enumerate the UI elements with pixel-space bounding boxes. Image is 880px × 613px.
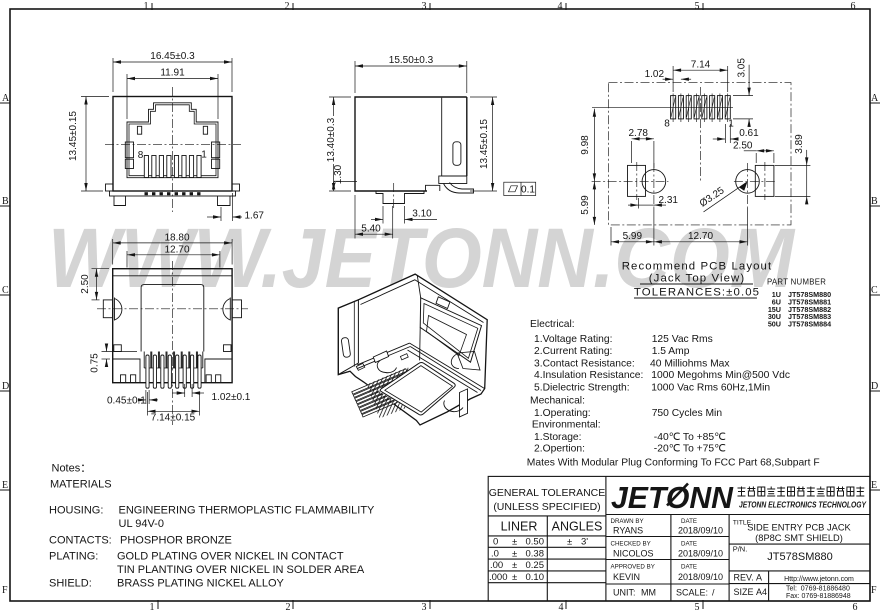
- svg-text:1.67: 1.67: [245, 211, 265, 222]
- svg-text:BRASS PLATING NICKEL ALLOY: BRASS PLATING NICKEL ALLOY: [117, 578, 285, 590]
- svg-text:0.50: 0.50: [526, 537, 545, 548]
- svg-text:1.5 Amp: 1.5 Amp: [652, 346, 690, 357]
- svg-text:C: C: [2, 285, 9, 296]
- svg-text:CONTACTS:: CONTACTS:: [49, 535, 112, 547]
- svg-text:1: 1: [150, 602, 155, 613]
- svg-text:PHOSPHOR BRONZE: PHOSPHOR BRONZE: [120, 535, 232, 547]
- svg-text:1.Operating:: 1.Operating:: [534, 408, 591, 419]
- svg-text:5.Dielectric Strength:: 5.Dielectric Strength:: [534, 383, 630, 394]
- svg-text:±: ±: [512, 572, 517, 583]
- svg-text:TIN PLANTING OVER NICKEL IN SO: TIN PLANTING OVER NICKEL IN SOLDER AREA: [117, 564, 365, 576]
- svg-text:2.78: 2.78: [629, 128, 649, 139]
- svg-text:0.45±0.1: 0.45±0.1: [107, 395, 146, 406]
- svg-text:Mechanical:: Mechanical:: [530, 395, 585, 406]
- svg-text:±: ±: [567, 537, 572, 548]
- svg-text:LINER: LINER: [501, 520, 538, 534]
- svg-text:2.50: 2.50: [80, 274, 91, 294]
- svg-text:2018/09/10: 2018/09/10: [678, 526, 723, 536]
- svg-text:DATE: DATE: [681, 518, 697, 525]
- svg-text:2.31: 2.31: [659, 195, 679, 206]
- svg-text:15.50±0.3: 15.50±0.3: [389, 55, 434, 66]
- svg-text:Mates With Modular Plug Confor: Mates With Modular Plug Conforming To FC…: [527, 458, 820, 469]
- svg-text:0.25: 0.25: [526, 560, 545, 571]
- svg-text:JT578SM884: JT578SM884: [788, 320, 831, 329]
- svg-text:±: ±: [512, 560, 517, 571]
- svg-text:18.80: 18.80: [164, 233, 189, 244]
- svg-text:ANGLES: ANGLES: [552, 520, 603, 534]
- svg-text:7.14±0.15: 7.14±0.15: [151, 413, 196, 424]
- svg-text:±: ±: [512, 537, 517, 548]
- svg-text:PART NUMBER: PART NUMBER: [767, 278, 826, 287]
- svg-text:750 Cycles Min: 750 Cycles Min: [652, 408, 723, 419]
- svg-text:B: B: [2, 196, 9, 207]
- svg-text:D: D: [871, 381, 878, 392]
- svg-text:APPROVED BY: APPROVED BY: [611, 564, 655, 571]
- svg-text:.0: .0: [491, 548, 499, 559]
- svg-text:5.99: 5.99: [623, 231, 643, 242]
- svg-text:5: 5: [695, 602, 700, 613]
- svg-text:.00: .00: [490, 560, 503, 571]
- svg-text:F: F: [871, 585, 877, 596]
- svg-text:5: 5: [695, 1, 700, 12]
- svg-text:E: E: [2, 480, 8, 491]
- svg-text:REV.: REV.: [734, 573, 754, 583]
- svg-text:MM: MM: [641, 588, 656, 598]
- svg-text:SIZE: SIZE: [734, 587, 754, 597]
- svg-text:0: 0: [493, 537, 498, 548]
- svg-text:0.75: 0.75: [90, 353, 101, 373]
- svg-text:7.14: 7.14: [691, 59, 711, 70]
- svg-text:ENGINEERING THERMOPLASTIC FLAM: ENGINEERING THERMOPLASTIC FLAMMABILITY: [119, 505, 376, 517]
- svg-text:3: 3: [422, 602, 427, 613]
- svg-text:13.45±0.15: 13.45±0.15: [68, 111, 79, 161]
- svg-text:Http://www.jetonn.com: Http://www.jetonn.com: [784, 576, 854, 583]
- svg-text:TOLERANCES:±0.05: TOLERANCES:±0.05: [634, 287, 760, 299]
- svg-text:1.Voltage Rating:: 1.Voltage Rating:: [534, 334, 612, 345]
- svg-text:SCALE:: SCALE:: [676, 588, 708, 598]
- svg-text:1000 Megohms Min@500 Vdc: 1000 Megohms Min@500 Vdc: [651, 370, 790, 381]
- svg-text:8: 8: [138, 150, 144, 161]
- svg-text:UNIT:: UNIT:: [613, 588, 636, 598]
- svg-text:6: 6: [853, 602, 858, 613]
- svg-text:2: 2: [285, 1, 290, 12]
- svg-text:Electrical:: Electrical:: [530, 319, 575, 330]
- svg-text:50U: 50U: [768, 320, 781, 329]
- svg-text:-20℃ To +75℃: -20℃ To +75℃: [654, 444, 726, 455]
- svg-text:5.99: 5.99: [580, 195, 591, 215]
- svg-text:13.45±0.15: 13.45±0.15: [479, 119, 490, 169]
- svg-text:(UNLESS SPECIFIED): (UNLESS SPECIFIED): [493, 501, 600, 513]
- svg-text:16.45±0.3: 16.45±0.3: [150, 51, 195, 62]
- svg-text:2.50: 2.50: [733, 141, 753, 152]
- svg-text:SHIELD:: SHIELD:: [49, 578, 92, 590]
- svg-text:125 Vac Rms: 125 Vac Rms: [652, 334, 713, 345]
- svg-text:0.38: 0.38: [526, 548, 545, 559]
- svg-text:4: 4: [558, 1, 563, 12]
- svg-text:9.98: 9.98: [580, 135, 591, 155]
- svg-text:JETONN: JETONN: [611, 480, 734, 515]
- svg-text:Environmental:: Environmental:: [532, 420, 601, 431]
- svg-text:GENERAL TOLERANCE: GENERAL TOLERANCE: [489, 487, 606, 499]
- svg-text:D: D: [2, 381, 9, 392]
- svg-text:A: A: [756, 573, 762, 583]
- svg-text:RYANS: RYANS: [613, 526, 643, 536]
- svg-text:11.91: 11.91: [160, 68, 185, 79]
- svg-text:8: 8: [664, 119, 670, 130]
- svg-text:F: F: [2, 585, 8, 596]
- svg-text:1: 1: [144, 1, 149, 12]
- svg-text:E: E: [871, 480, 877, 491]
- svg-text:0.10: 0.10: [526, 572, 545, 583]
- svg-text:JT578SM880: JT578SM880: [767, 551, 832, 563]
- svg-text:CHECKED BY: CHECKED BY: [611, 541, 651, 548]
- svg-text:NICOLOS: NICOLOS: [613, 549, 654, 559]
- svg-text:P/N.: P/N.: [733, 545, 748, 554]
- svg-text:12.70: 12.70: [164, 244, 189, 255]
- svg-text:UL 94V-0: UL 94V-0: [119, 518, 164, 530]
- svg-text:JETONN ELECTRONICS TECHNOLOGY: JETONN ELECTRONICS TECHNOLOGY: [739, 500, 867, 510]
- svg-text:MATERIALS: MATERIALS: [50, 479, 112, 491]
- svg-text:DRAWN BY: DRAWN BY: [611, 518, 644, 525]
- svg-text:0.61: 0.61: [739, 128, 759, 139]
- svg-text:6: 6: [851, 1, 856, 12]
- svg-text:0.1: 0.1: [521, 184, 535, 195]
- svg-text:C: C: [871, 285, 878, 296]
- svg-text:2.Opertion:: 2.Opertion:: [534, 444, 585, 455]
- svg-text:A4: A4: [756, 587, 767, 597]
- svg-text:B: B: [871, 196, 878, 207]
- svg-text:HOUSING:: HOUSING:: [49, 505, 103, 517]
- svg-text:3': 3': [581, 537, 588, 548]
- svg-text:1.02±0.1: 1.02±0.1: [212, 392, 251, 403]
- svg-text:Fax: 0769-81886948: Fax: 0769-81886948: [786, 593, 851, 600]
- svg-text:1: 1: [728, 119, 734, 130]
- svg-text:SIDE ENTRY PCB JACK: SIDE ENTRY PCB JACK: [747, 523, 851, 533]
- svg-text:12.70: 12.70: [688, 231, 713, 242]
- svg-text:1.02: 1.02: [645, 69, 665, 80]
- svg-text:(8P8C SMT SHIELD): (8P8C SMT SHIELD): [755, 533, 843, 543]
- svg-text:PLATING:: PLATING:: [49, 551, 98, 563]
- svg-text:A: A: [871, 93, 879, 104]
- svg-text:1.Storage:: 1.Storage:: [534, 432, 582, 443]
- svg-text:3.89: 3.89: [794, 134, 805, 154]
- svg-text:1000 Vac Rms 60Hz,1Min: 1000 Vac Rms 60Hz,1Min: [651, 383, 770, 394]
- svg-text:13.40±0.3: 13.40±0.3: [326, 117, 337, 162]
- svg-text:4: 4: [559, 602, 564, 613]
- svg-text:DATE: DATE: [681, 564, 697, 571]
- svg-text:(Jack Top View): (Jack Top View): [649, 273, 745, 285]
- svg-text:3: 3: [422, 1, 427, 12]
- svg-text:DATE: DATE: [681, 541, 697, 548]
- svg-text:2.Current Rating:: 2.Current Rating:: [534, 346, 612, 357]
- svg-text:3.05: 3.05: [737, 58, 748, 78]
- svg-text:GOLD PLATING OVER NICKEL IN CO: GOLD PLATING OVER NICKEL IN CONTACT: [117, 551, 344, 563]
- svg-text:Notes：: Notes：: [52, 463, 92, 475]
- svg-text:3.10: 3.10: [412, 209, 432, 220]
- svg-text:5.40: 5.40: [361, 223, 381, 234]
- svg-text:-40℃ To +85℃: -40℃ To +85℃: [654, 432, 726, 443]
- svg-text:±: ±: [512, 548, 517, 559]
- svg-text:1.30: 1.30: [333, 164, 344, 184]
- svg-text:2018/09/10: 2018/09/10: [678, 572, 723, 582]
- svg-text:KEVIN: KEVIN: [613, 572, 640, 582]
- svg-text:1: 1: [201, 150, 207, 161]
- svg-text:Recommend PCB Layout: Recommend PCB Layout: [622, 261, 773, 273]
- svg-text:3.Contact Resistance:: 3.Contact Resistance:: [534, 358, 635, 369]
- svg-text:Tel: 0769-81886480: Tel: 0769-81886480: [786, 586, 850, 593]
- svg-text:A: A: [2, 93, 10, 104]
- svg-text:4.Insulation Resistance:: 4.Insulation Resistance:: [534, 370, 643, 381]
- svg-text:.000: .000: [489, 572, 508, 583]
- svg-text:2018/09/10: 2018/09/10: [678, 549, 723, 559]
- svg-text:40 Milliohms Max: 40 Milliohms Max: [650, 358, 730, 369]
- svg-text:2: 2: [286, 602, 291, 613]
